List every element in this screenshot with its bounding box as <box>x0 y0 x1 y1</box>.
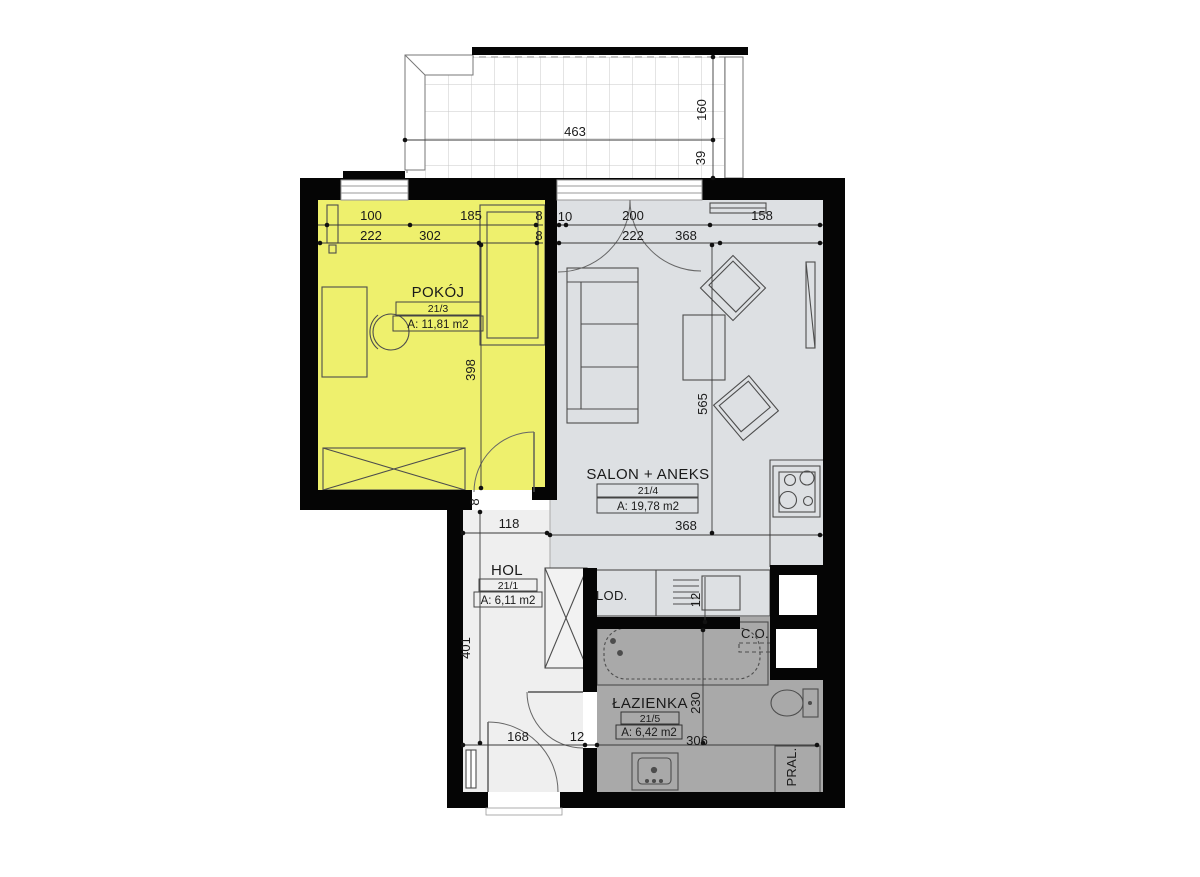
wall-right <box>823 178 845 808</box>
wall-pokoj-bottom <box>300 490 472 510</box>
shaft-opening-top <box>779 575 817 615</box>
dim-balcony-depth: 160 <box>694 99 709 121</box>
heating-label: C.O. <box>741 626 769 641</box>
salon-number: 21/4 <box>638 485 659 497</box>
salon-name: SALON + ANEKS <box>586 466 709 483</box>
wall-left <box>300 200 318 510</box>
dim-salon-depth: 565 <box>695 393 710 415</box>
dim-bottom-12: 12 <box>570 729 584 744</box>
pokoj-name: POKÓJ <box>412 284 465 301</box>
dim-salon-222: 222 <box>622 228 644 243</box>
wall-hol-bath <box>583 568 597 808</box>
wall-salon-bath <box>583 617 740 629</box>
dim-balcony-width: 463 <box>564 124 586 139</box>
wall-pokoj-foot <box>532 487 557 500</box>
balcony-pillar-right <box>725 57 743 178</box>
fridge-label: LOD. <box>596 588 628 603</box>
dim-hol-118: 118 <box>499 516 520 531</box>
dim-pokoj-8b: 8 <box>535 228 542 243</box>
lazienka-number: 21/5 <box>640 713 661 725</box>
wall-pokoj-salon <box>545 178 557 490</box>
hol-number: 21/1 <box>498 580 519 592</box>
dim-pokoj-8a: 8 <box>535 208 542 223</box>
shaft-opening-bottom <box>776 629 817 668</box>
dim-salon-368b: 368 <box>675 518 697 533</box>
dim-pokoj-door-8: 8 <box>467 498 482 505</box>
radiator-hol <box>466 750 476 788</box>
dim-salon-368: 368 <box>675 228 697 243</box>
dim-salon-158: 158 <box>751 208 773 223</box>
pokoj-number: 21/3 <box>428 303 449 315</box>
salon-area: A: 19,78 m2 <box>617 501 679 513</box>
dim-pokoj-100: 100 <box>360 208 382 223</box>
balcony-slab-edge <box>472 47 748 55</box>
lazienka-name: ŁAZIENKA <box>612 695 688 712</box>
hol-name: HOL <box>491 562 523 579</box>
dim-pokoj-185: 185 <box>460 208 482 223</box>
lazienka-area: A: 6,42 m2 <box>621 727 677 739</box>
dim-hol-depth: 401 <box>458 637 473 659</box>
dim-salon-10: 10 <box>558 209 572 224</box>
dim-pokoj-222: 222 <box>360 228 382 243</box>
dim-salon-200: 200 <box>622 208 644 223</box>
dim-bottom-168: 168 <box>507 729 529 744</box>
dim-pokoj-depth: 398 <box>463 359 478 381</box>
floor-plan: 463 160 39 100 185 8 222 302 8 10 200 15… <box>0 0 1200 877</box>
hol-area: A: 6,11 m2 <box>481 595 536 607</box>
pokoj-area: A: 11,81 m2 <box>407 319 468 331</box>
wardrobe-hol <box>545 568 587 668</box>
washer-label: PRAL. <box>784 747 799 786</box>
dim-pokoj-302: 302 <box>419 228 441 243</box>
dim-sink-12: 12 <box>688 593 703 607</box>
dim-bottom-306: 306 <box>686 733 708 748</box>
dim-balcony-edge: 39 <box>693 151 708 165</box>
window-lintel <box>343 171 405 179</box>
floor-plan-page: 463 160 39 100 185 8 222 302 8 10 200 15… <box>0 0 1200 877</box>
dim-bath-depth: 230 <box>688 692 703 714</box>
pokoj-window <box>341 180 408 200</box>
